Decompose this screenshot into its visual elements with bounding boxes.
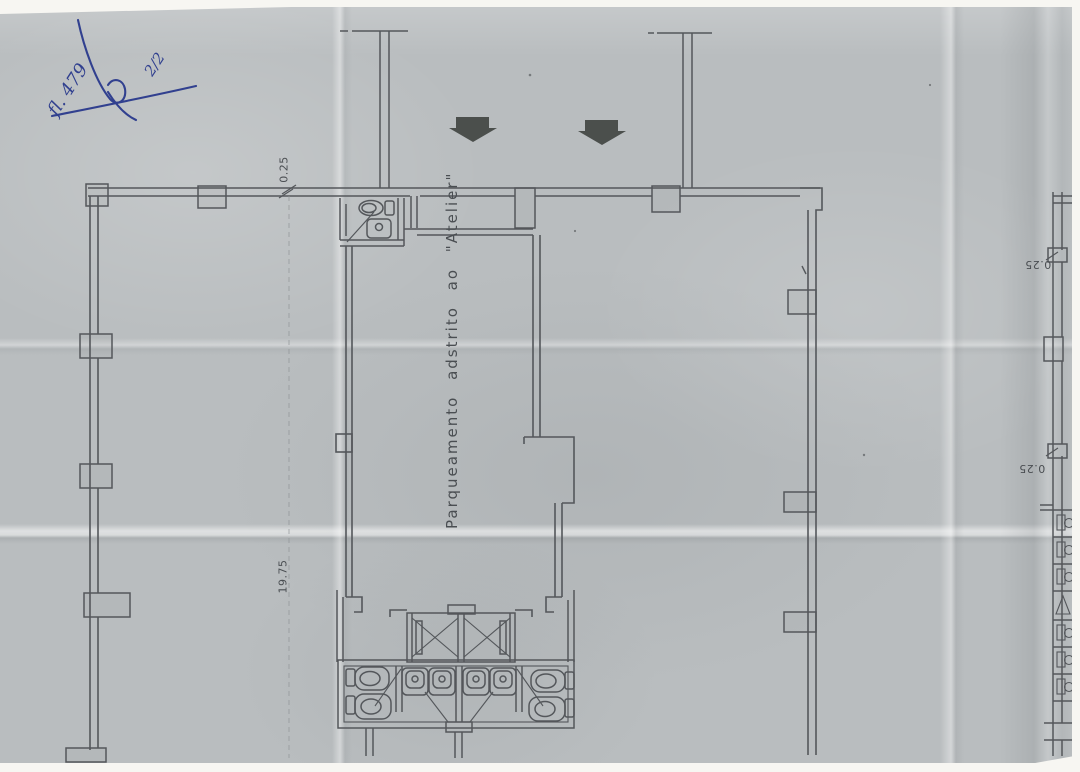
sink-icon: [463, 668, 489, 695]
down-arrow-icon: [578, 120, 626, 145]
toilet-icon: [346, 694, 391, 719]
elevator-shaft-x: [464, 618, 510, 657]
sink-icon: [490, 668, 516, 695]
blemish-mark: [802, 266, 806, 274]
entrance-approach-lines: [340, 31, 712, 188]
floor-plan-drawing: [0, 0, 1080, 772]
structural-columns: [66, 184, 816, 762]
down-arrow-icon: [449, 117, 497, 142]
dimension-marks: [279, 185, 806, 758]
elevator-shaft-x: [412, 618, 458, 657]
stall-toilet-icons: [1056, 515, 1074, 694]
sink-icon: [402, 668, 428, 695]
sink-icon: [367, 219, 391, 238]
scan-margin-bottom: [0, 763, 1080, 772]
scanned-floor-plan-page: Parqueamento adstrito ao "Atelier" 0.25 …: [0, 0, 1080, 772]
scan-margin-right: [1072, 0, 1080, 772]
adjacent-dimension-lower: 0.25: [1011, 462, 1053, 475]
sink-icon: [429, 668, 455, 695]
door-swing-lines: [375, 669, 543, 722]
elevator-core: [337, 590, 574, 662]
toilet-icon: [359, 201, 394, 216]
toilet-icon: [529, 697, 574, 721]
adjacent-dimension-upper: 0.25: [1017, 258, 1059, 271]
lower-bathrooms: [338, 660, 574, 758]
parking-area-label: Parqueamento adstrito ao "Atelier": [443, 209, 461, 529]
toilet-icon: [346, 667, 389, 690]
upper-bathroom: [340, 196, 417, 246]
dimension-side-length: 19.75: [277, 552, 290, 602]
entrance-arrows: [449, 117, 626, 145]
dimension-wall-offset: 0.25: [278, 150, 291, 190]
